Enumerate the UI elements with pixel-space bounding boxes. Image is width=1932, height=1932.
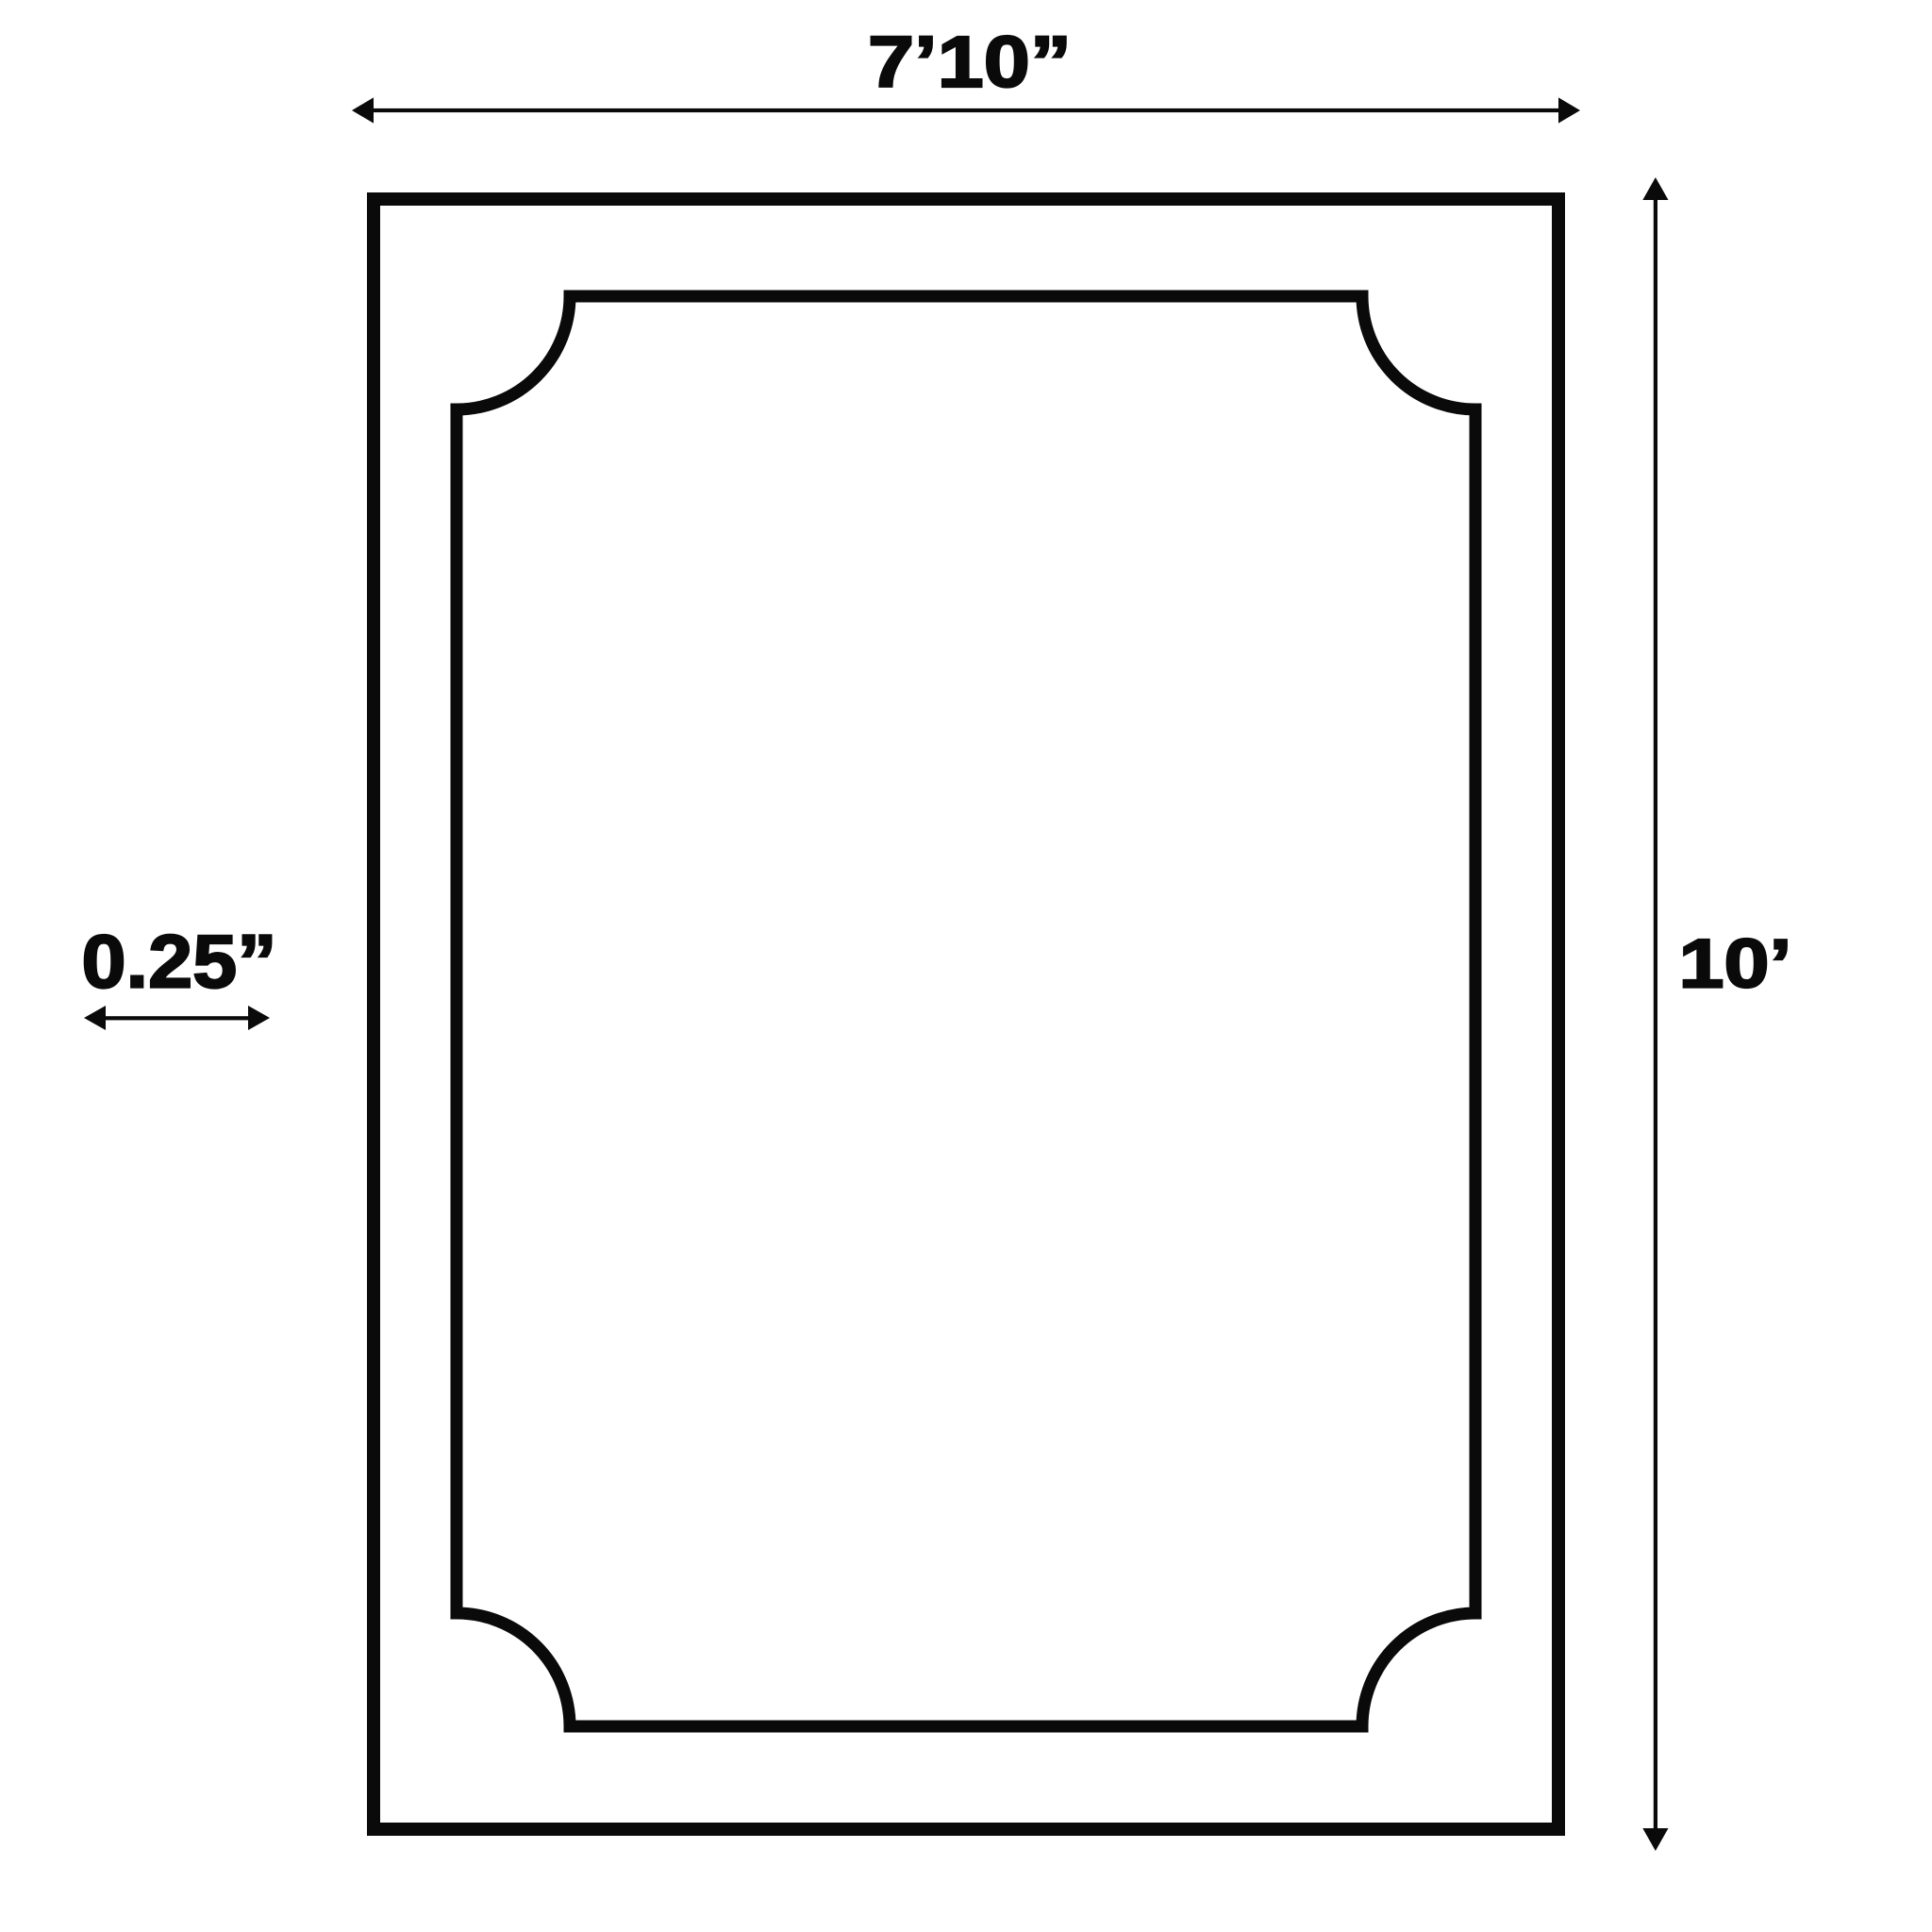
svg-text:7’10”: 7’10” bbox=[868, 22, 1072, 103]
svg-text:0.25”: 0.25” bbox=[82, 920, 277, 1004]
svg-text:10’: 10’ bbox=[1679, 924, 1792, 1003]
